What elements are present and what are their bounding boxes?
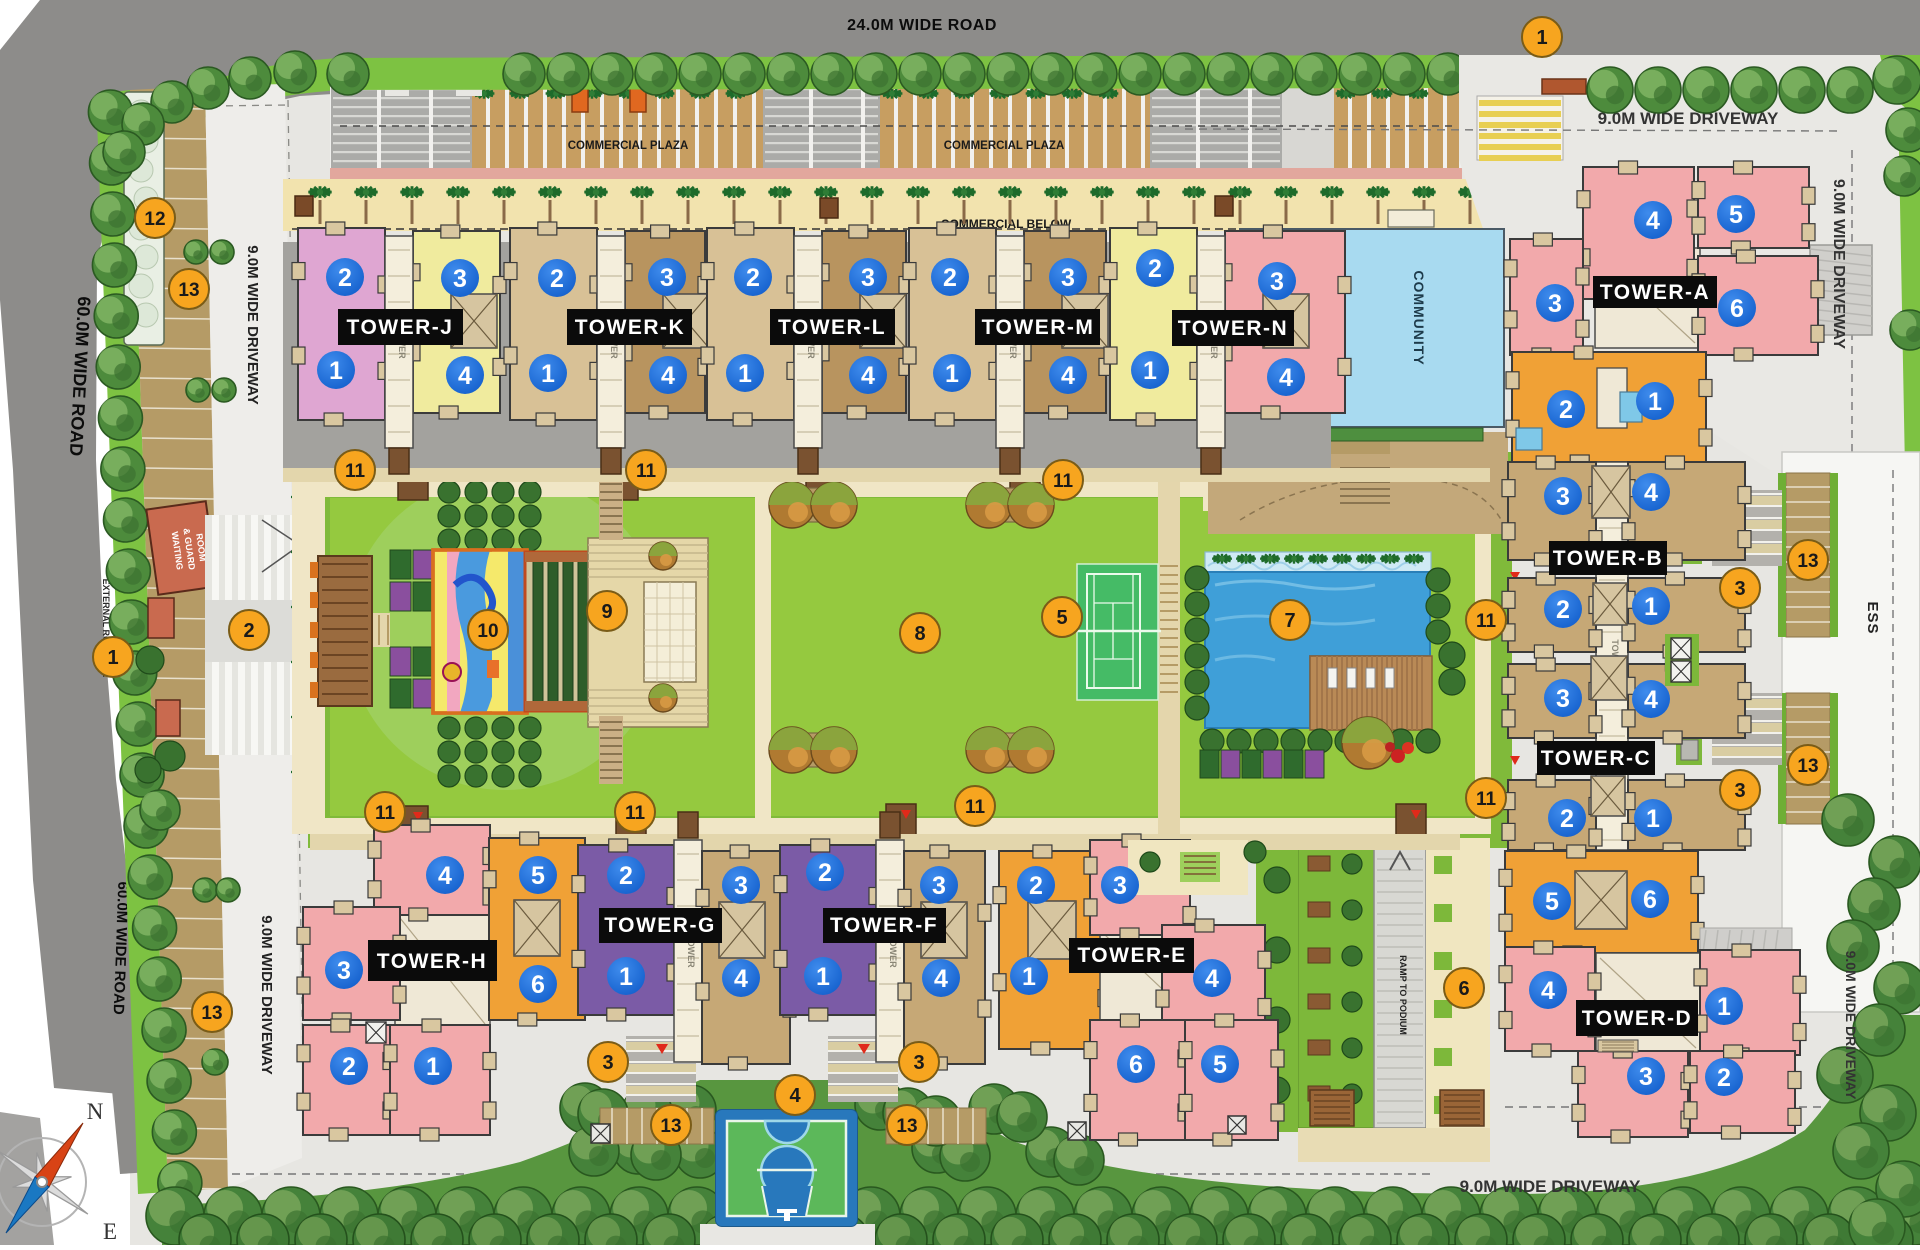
svg-text:8: 8 <box>914 623 925 645</box>
svg-text:1: 1 <box>816 963 830 991</box>
svg-text:2: 2 <box>342 1053 356 1081</box>
svg-text:2: 2 <box>1560 805 1574 833</box>
svg-text:11: 11 <box>625 803 646 824</box>
svg-text:3: 3 <box>337 957 351 985</box>
svg-text:2: 2 <box>338 264 352 292</box>
svg-text:4: 4 <box>1644 479 1658 507</box>
svg-text:11: 11 <box>1476 789 1497 810</box>
svg-text:2: 2 <box>1559 396 1573 424</box>
svg-text:9.0M WIDE DRIVEWAY: 9.0M WIDE DRIVEWAY <box>244 245 261 404</box>
svg-text:3: 3 <box>602 1052 613 1074</box>
svg-text:COMMUNITY: COMMUNITY <box>1411 270 1427 365</box>
svg-text:1: 1 <box>329 357 343 385</box>
svg-text:3: 3 <box>1734 780 1745 802</box>
svg-text:9: 9 <box>601 601 612 623</box>
svg-text:TOWER-A: TOWER-A <box>1600 281 1710 304</box>
svg-text:COMMERCIAL PLAZA: COMMERCIAL PLAZA <box>568 140 689 152</box>
svg-text:12: 12 <box>144 209 165 230</box>
svg-text:5: 5 <box>1545 888 1559 916</box>
svg-text:TOWER-F: TOWER-F <box>830 914 938 937</box>
svg-text:4: 4 <box>1541 977 1555 1005</box>
svg-text:3: 3 <box>1734 578 1745 600</box>
svg-text:10: 10 <box>477 621 498 642</box>
svg-text:24.0M WIDE ROAD: 24.0M WIDE ROAD <box>847 17 997 34</box>
svg-text:TOWER-E: TOWER-E <box>1077 944 1186 967</box>
svg-text:2: 2 <box>818 859 832 887</box>
svg-text:11: 11 <box>1476 611 1497 632</box>
svg-text:2: 2 <box>1148 255 1162 283</box>
svg-text:7: 7 <box>1284 610 1295 632</box>
svg-text:3: 3 <box>1556 483 1570 511</box>
svg-text:3: 3 <box>660 264 674 292</box>
svg-text:1: 1 <box>1644 593 1658 621</box>
svg-text:TOWER-N: TOWER-N <box>1178 317 1288 340</box>
svg-text:TOWER-H: TOWER-H <box>377 950 487 973</box>
svg-text:6: 6 <box>1730 295 1744 323</box>
svg-text:3: 3 <box>1061 264 1075 292</box>
svg-text:4: 4 <box>861 362 875 390</box>
svg-text:4: 4 <box>1279 364 1293 392</box>
svg-text:13: 13 <box>1797 551 1818 572</box>
svg-text:11: 11 <box>375 803 396 824</box>
svg-text:9.0M WIDE DRIVEWAY: 9.0M WIDE DRIVEWAY <box>1830 179 1847 349</box>
svg-text:13: 13 <box>1797 756 1818 777</box>
svg-text:13: 13 <box>201 1003 222 1024</box>
svg-text:1: 1 <box>541 360 555 388</box>
svg-text:9.0M WIDE DRIVEWAY: 9.0M WIDE DRIVEWAY <box>1460 1177 1641 1196</box>
svg-text:6: 6 <box>1458 978 1469 1000</box>
svg-text:3: 3 <box>1548 290 1562 318</box>
svg-text:E: E <box>103 1219 117 1244</box>
svg-text:2: 2 <box>619 862 633 890</box>
svg-text:2: 2 <box>943 264 957 292</box>
svg-text:13: 13 <box>896 1116 917 1137</box>
svg-text:1: 1 <box>1648 388 1662 416</box>
svg-text:1: 1 <box>738 360 752 388</box>
svg-text:2: 2 <box>746 264 760 292</box>
svg-text:1: 1 <box>107 647 118 669</box>
svg-text:TOWER-D: TOWER-D <box>1582 1007 1692 1030</box>
svg-text:11: 11 <box>636 461 657 482</box>
svg-text:2: 2 <box>243 620 254 642</box>
svg-text:11: 11 <box>1053 471 1074 492</box>
svg-text:3: 3 <box>932 872 946 900</box>
svg-text:3: 3 <box>1556 685 1570 713</box>
svg-text:COMMERCIAL PLAZA: COMMERCIAL PLAZA <box>944 140 1065 152</box>
svg-text:1: 1 <box>1143 357 1157 385</box>
svg-text:4: 4 <box>1644 686 1658 714</box>
svg-text:3: 3 <box>453 265 467 293</box>
svg-text:RAMP TO PODIUM: RAMP TO PODIUM <box>1398 955 1408 1035</box>
svg-text:4: 4 <box>934 965 948 993</box>
svg-text:TOWER-G: TOWER-G <box>604 914 716 937</box>
svg-text:4: 4 <box>438 862 452 890</box>
svg-text:1: 1 <box>1646 805 1660 833</box>
svg-text:3: 3 <box>1270 268 1284 296</box>
svg-text:4: 4 <box>661 362 675 390</box>
svg-text:4: 4 <box>789 1085 801 1107</box>
svg-text:9.0M WIDE DRIVEWAY: 9.0M WIDE DRIVEWAY <box>1843 951 1859 1101</box>
svg-text:TOWER-M: TOWER-M <box>982 316 1095 339</box>
svg-text:2: 2 <box>1717 1064 1731 1092</box>
svg-text:11: 11 <box>345 461 366 482</box>
svg-text:3: 3 <box>734 872 748 900</box>
svg-text:1: 1 <box>426 1053 440 1081</box>
svg-text:9.0M WIDE DRIVEWAY: 9.0M WIDE DRIVEWAY <box>258 915 275 1074</box>
svg-text:13: 13 <box>660 1116 681 1137</box>
svg-text:TOWER-J: TOWER-J <box>347 316 454 339</box>
svg-text:TOWER-K: TOWER-K <box>575 316 685 339</box>
svg-text:N: N <box>87 1099 104 1124</box>
svg-text:5: 5 <box>1056 607 1067 629</box>
svg-text:1: 1 <box>945 360 959 388</box>
svg-text:11: 11 <box>965 797 986 818</box>
svg-text:4: 4 <box>734 965 748 993</box>
svg-text:6: 6 <box>1129 1051 1143 1079</box>
svg-text:1: 1 <box>1717 993 1731 1021</box>
svg-text:3: 3 <box>861 264 875 292</box>
svg-text:5: 5 <box>531 862 545 890</box>
svg-text:3: 3 <box>1639 1063 1653 1091</box>
svg-text:4: 4 <box>1646 207 1660 235</box>
svg-text:1: 1 <box>619 963 633 991</box>
svg-text:3: 3 <box>913 1052 924 1074</box>
svg-text:5: 5 <box>1213 1051 1227 1079</box>
svg-text:6: 6 <box>531 971 545 999</box>
svg-text:1: 1 <box>1536 27 1547 49</box>
svg-text:TOWER-C: TOWER-C <box>1541 747 1651 770</box>
svg-text:2: 2 <box>1029 872 1043 900</box>
svg-text:TOWER-L: TOWER-L <box>778 316 886 339</box>
svg-text:2: 2 <box>1556 596 1570 624</box>
svg-text:4: 4 <box>458 362 472 390</box>
svg-text:3: 3 <box>1113 872 1127 900</box>
svg-text:13: 13 <box>178 280 199 301</box>
svg-text:6: 6 <box>1643 886 1657 914</box>
svg-text:4: 4 <box>1061 362 1075 390</box>
svg-text:4: 4 <box>1205 965 1219 993</box>
svg-text:5: 5 <box>1729 201 1743 229</box>
svg-text:ESS: ESS <box>1864 601 1881 634</box>
svg-text:2: 2 <box>550 265 564 293</box>
svg-text:1: 1 <box>1022 963 1036 991</box>
svg-text:TOWER-B: TOWER-B <box>1553 547 1663 570</box>
